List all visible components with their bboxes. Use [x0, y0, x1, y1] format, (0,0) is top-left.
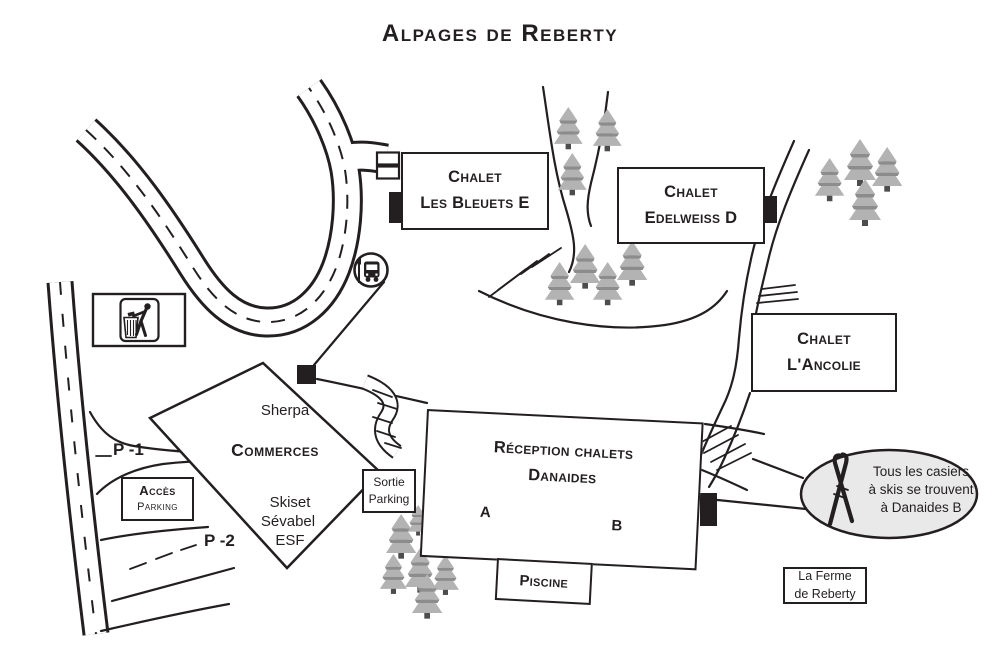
ferme-label-line2: de Reberty [794, 586, 855, 604]
ski-lockers-note-line3: à Danaides B [853, 499, 989, 517]
parking-level-1-label: P -1 [113, 440, 144, 460]
chalet-bleuets-label-line2: Les Bleuets E [420, 191, 529, 217]
acces-parking-box: Accès Parking [121, 477, 194, 521]
commerces-shop-sherpa: Sherpa [240, 402, 330, 419]
sortie-parking-box: Sortie Parking [362, 469, 416, 513]
chalet-edelweiss-label-line1: Chalet [664, 180, 718, 206]
sortie-parking-line2: Parking [369, 491, 410, 508]
slope-hatches-east [757, 285, 798, 303]
slope-hatches-south [698, 426, 751, 470]
ferme-label-line1: La Ferme [798, 568, 852, 586]
road-main [86, 88, 386, 322]
ski-lockers-note-line1: Tous les casiers [853, 463, 989, 481]
tree-cluster-northeast [815, 139, 902, 226]
ferme-reberty-box: La Ferme de Reberty [783, 567, 867, 604]
stairs-path [365, 382, 401, 452]
bus-stop-icon [355, 254, 388, 287]
sortie-parking-line1: Sortie [373, 474, 404, 491]
chalet-edelweiss-box: Chalet Edelweiss D [617, 167, 765, 244]
tree-cluster-central [545, 241, 647, 305]
chalet-bleuets-box: Chalet Les Bleuets E [401, 152, 549, 230]
piscine-label: Piscine [519, 572, 569, 592]
ski-lockers-note: Tous les casiers à skis se trouvent à Da… [853, 463, 989, 517]
chalet-ancolie-box: Chalet L'Ancolie [751, 313, 897, 392]
chalet-ancolie-label-line1: Chalet [797, 327, 851, 353]
reception-unit-a: A [480, 504, 492, 522]
ski-lockers-note-line2: à skis se trouvent [853, 481, 989, 499]
reception-label-line2: Danaides [426, 461, 700, 493]
parking-bays [377, 153, 399, 179]
resort-map: Alpages de Reberty Chalet Les Bleuets E … [0, 0, 1000, 657]
commerces-shop-sevabel: Sévabel [243, 513, 333, 530]
chalet-edelweiss-label-line2: Edelweiss D [645, 206, 738, 232]
commerces-shop-esf: ESF [245, 532, 335, 549]
commerces-shop-skiset: Skiset [245, 494, 335, 511]
chalet-bleuets-label-line1: Chalet [448, 165, 502, 191]
tree-cluster-north [554, 107, 622, 195]
acces-parking-line1: Accès [139, 483, 175, 500]
parking-level-2-label: P -2 [204, 531, 235, 551]
chalet-ancolie-label-line2: L'Ancolie [787, 353, 861, 379]
piscine-box: Piscine [495, 558, 593, 605]
reception-unit-b: B [611, 517, 623, 535]
commerces-heading: Commerces [215, 440, 335, 461]
acces-parking-line2: Parking [137, 500, 178, 514]
page-title: Alpages de Reberty [0, 20, 1000, 48]
litter-disposal-sign [93, 294, 185, 346]
reception-danaides-box: Réception chalets Danaides A B [420, 409, 704, 570]
